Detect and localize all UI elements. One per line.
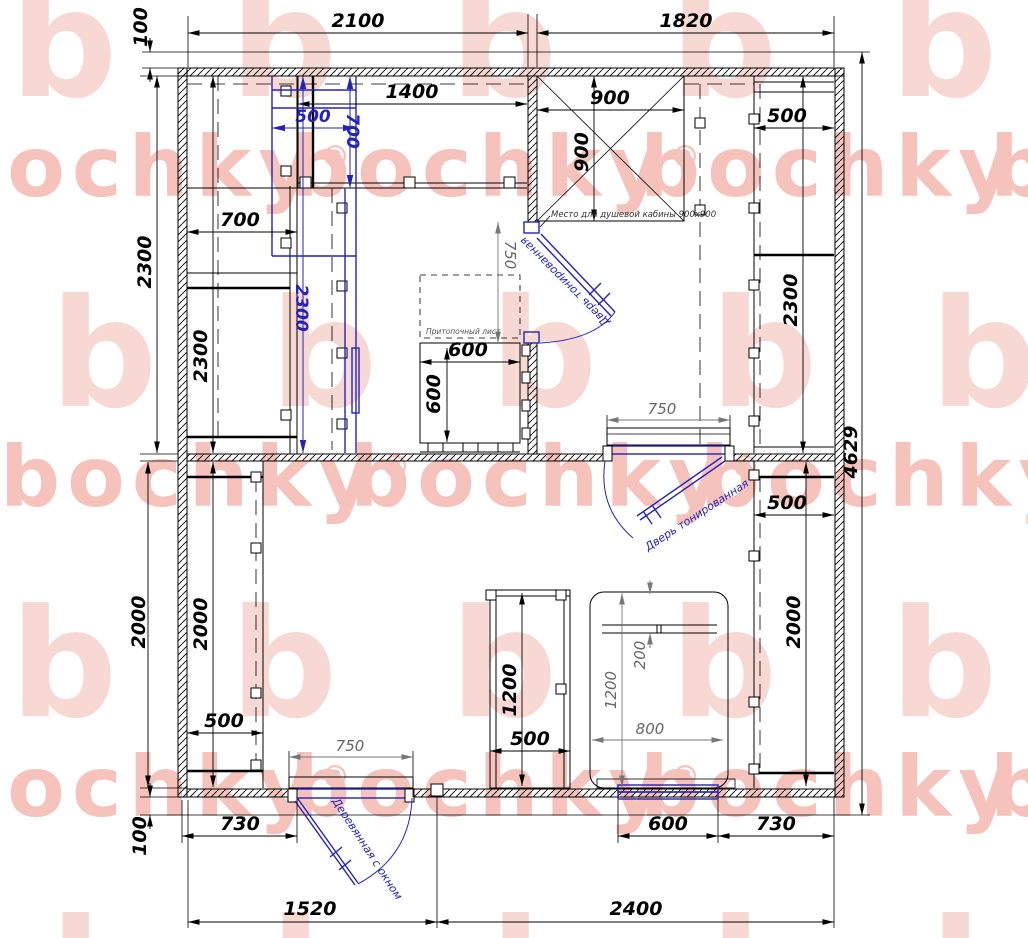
dim-bed-w: 800: [636, 720, 665, 738]
door-shower-label: Дверь тонированная: [517, 234, 613, 330]
dim-bl-bench-w: 500: [204, 710, 244, 732]
shower-area: [537, 76, 754, 450]
dim-b1520: 1520: [284, 898, 337, 920]
dim-cab-len: 1200: [499, 664, 521, 717]
floorplan-drawing: 100 2100 1820 1400 500 700 700 2300 2300…: [0, 0, 1028, 938]
dim-rt-room-h: 2300: [780, 274, 802, 327]
door-middle-label: Дверь тонированная: [642, 477, 752, 555]
dim-b730l: 730: [220, 813, 260, 835]
dim-cab-w: 500: [510, 728, 550, 750]
dim-total-h: 4629: [840, 426, 862, 480]
dim-left-bench-depth: 700: [220, 209, 260, 231]
dim-bl-inner-h: 2000: [190, 598, 212, 651]
dim-shower-door: 750: [501, 241, 519, 270]
dim-blue-len: 2300: [291, 284, 311, 331]
dim-b730r: 730: [756, 813, 796, 835]
dim-width-right: 1820: [660, 10, 713, 32]
dim-mid-door: 750: [648, 400, 677, 418]
floorplan-page: bbbbbbochky®bochky®bochky®bochky®bbbbbbo…: [0, 0, 1028, 938]
dim-b600: 600: [648, 813, 688, 835]
dim-blue-width: 500: [295, 107, 331, 127]
dim-stove-w: 600: [448, 339, 488, 361]
door-middle: [603, 428, 734, 538]
dim-rb-bench-w: 500: [767, 492, 807, 514]
dim-left-room-h: 2300: [134, 236, 156, 289]
dim-bench-len: 1400: [386, 81, 439, 103]
dim-width-left: 2100: [332, 10, 385, 32]
dim-rb-len: 2000: [783, 596, 805, 649]
dim-bed-head: 200: [631, 641, 649, 670]
dimension-texts: 100 2100 1820 1400 500 700 700 2300 2300…: [128, 7, 862, 920]
dim-b2400: 2400: [610, 898, 663, 920]
stove: [420, 275, 530, 452]
dim-blue-depth: 700: [342, 113, 362, 149]
dim-bed-len: 1200: [602, 671, 620, 709]
hearth-label: Притопочный лист: [426, 327, 501, 336]
dim-stove-d: 600: [423, 374, 445, 414]
dim-bottom-offset: 100: [129, 816, 151, 856]
dim-rt-bench-w: 500: [767, 105, 807, 127]
dim-shower-w: 900: [590, 87, 630, 109]
dim-shower-h: 900: [571, 132, 593, 172]
dim-bl-room-h: 2000: [128, 596, 150, 649]
dim-bottom-door: 750: [336, 737, 365, 755]
right-top-bench: [749, 76, 834, 453]
dim-top-offset: 100: [130, 7, 152, 47]
dim-left-inner-h: 2300: [190, 330, 212, 383]
shower-note: Место для душевой кабины 900х900: [551, 210, 716, 220]
